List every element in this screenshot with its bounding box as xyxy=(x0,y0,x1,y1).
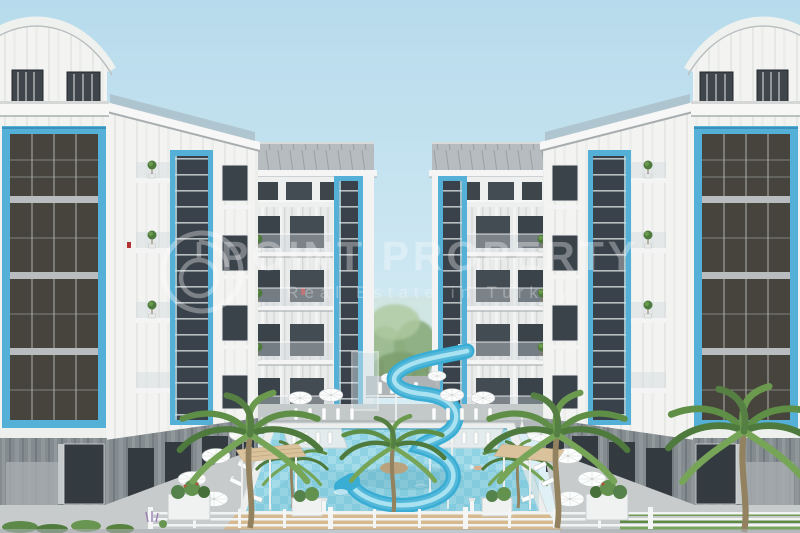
curtain-wall-right xyxy=(694,126,798,428)
render-image: POINT PROPERTY Real Estate in Turkey xyxy=(0,0,800,533)
curtain-wall-left xyxy=(2,126,106,428)
complex-render xyxy=(0,0,800,533)
